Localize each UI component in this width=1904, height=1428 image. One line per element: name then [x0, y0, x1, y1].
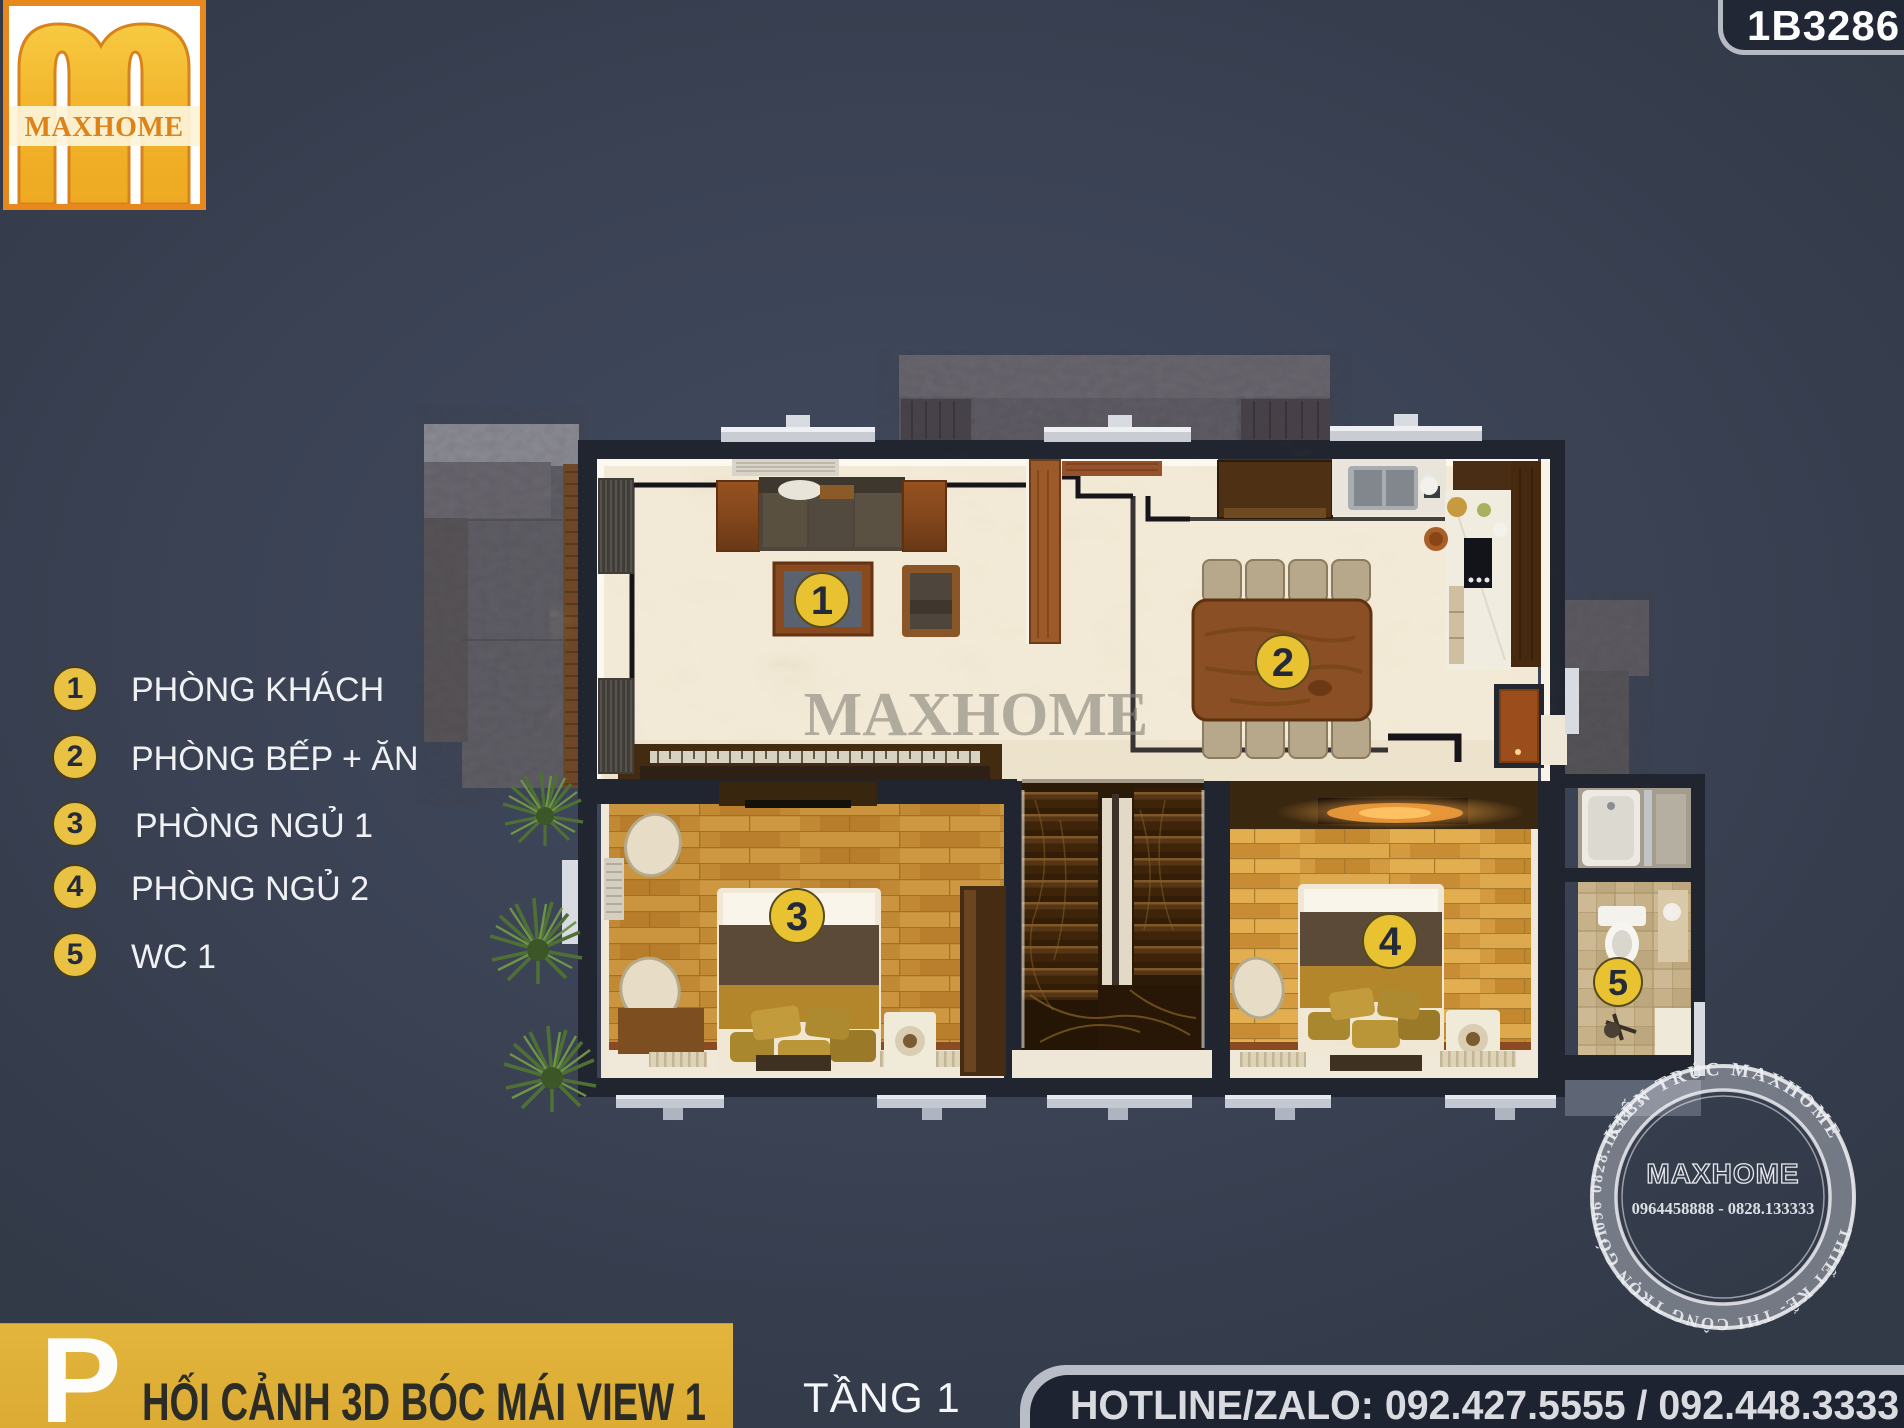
svg-text:3: 3 [786, 895, 808, 939]
svg-text:2: 2 [1272, 641, 1294, 685]
svg-text:0964458888 - 0828.133333: 0964458888 - 0828.133333 [1632, 1199, 1815, 1218]
svg-text:4: 4 [1379, 920, 1402, 964]
svg-text:1: 1 [811, 579, 833, 623]
svg-text:THIẾT KẾ- THI CÔNG TRỌN GÓI: THIẾT KẾ- THI CÔNG TRỌN GÓI [1590, 1226, 1856, 1334]
svg-text:5: 5 [1608, 962, 1628, 1003]
svg-text:MAXHOME: MAXHOME [1646, 1158, 1799, 1189]
svg-text:MAXHOME: MAXHOME [804, 681, 1148, 749]
